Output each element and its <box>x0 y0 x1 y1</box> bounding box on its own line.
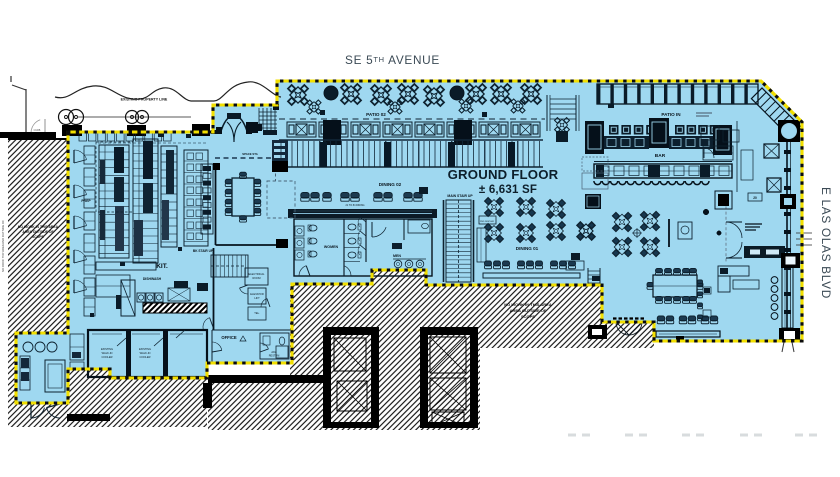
svg-text:SCOPE: SCOPE <box>521 314 535 319</box>
svg-text:2ND DISPLAY: 2ND DISPLAY <box>480 220 495 223</box>
svg-text:WALK-IN: WALK-IN <box>140 351 151 355</box>
svg-text:MEN: MEN <box>393 254 401 258</box>
svg-text:20: 20 <box>753 196 757 200</box>
svg-text:CURB: CURB <box>34 129 41 132</box>
svg-text:NO ROOF TOP AREA AND OUTSIDE O: NO ROOF TOP AREA AND OUTSIDE OF <box>1 220 5 272</box>
svg-text:SE 5TH AVENUE: SE 5TH AVENUE <box>345 53 440 67</box>
svg-text:E LAS OLAS BLVD: E LAS OLAS BLVD <box>819 187 833 299</box>
svg-text:SCOPE: SCOPE <box>32 235 45 239</box>
svg-text:EXISTING: EXISTING <box>101 347 113 351</box>
svg-text:COOLER: COOLER <box>140 355 151 359</box>
svg-text:KIT.: KIT. <box>156 263 168 270</box>
svg-text:DINING 01: DINING 01 <box>516 246 539 251</box>
svg-text:ELECTRICAL: ELECTRICAL <box>249 272 266 276</box>
svg-text:ROOM: ROOM <box>252 276 260 280</box>
svg-text:NO WORK IN THIS AREA: NO WORK IN THIS AREA <box>18 225 59 229</box>
svg-text:WALK-IN: WALK-IN <box>102 351 113 355</box>
svg-text:RESTRM: RESTRM <box>269 355 280 358</box>
svg-text:PREP: PREP <box>81 199 91 203</box>
svg-text:AREA OUTSIDE OF: AREA OUTSIDE OF <box>510 308 547 313</box>
svg-text:TEL.: TEL. <box>254 311 260 315</box>
svg-text:MAIN STAIR UP: MAIN STAIR UP <box>447 194 473 198</box>
svg-text:PATIO IN: PATIO IN <box>661 112 681 117</box>
svg-text:COOLER: COOLER <box>102 355 113 359</box>
svg-text:OFFICE: OFFICE <box>221 335 237 340</box>
svg-text:WOMEN: WOMEN <box>324 245 339 249</box>
svg-text:SPACE STA: SPACE STA <box>242 152 258 156</box>
svg-text:BK STAIR UP: BK STAIR UP <box>193 249 214 253</box>
svg-text:ELEVATOR: ELEVATOR <box>250 292 264 296</box>
svg-text:NO WORK IN THIS AREA: NO WORK IN THIS AREA <box>504 302 552 307</box>
svg-text:EXISTING PROPERTY LINE: EXISTING PROPERTY LINE <box>121 98 168 102</box>
svg-text:PATIO 02: PATIO 02 <box>366 112 386 117</box>
svg-text:GROUND FLOOR: GROUND FLOOR <box>448 167 559 182</box>
svg-text:± 6,631 SF: ± 6,631 SF <box>479 184 537 196</box>
svg-text:DINING 02: DINING 02 <box>379 182 402 187</box>
svg-text:EXISTING: EXISTING <box>139 347 151 351</box>
svg-text:LIFT: LIFT <box>254 296 260 300</box>
svg-text:DISHWASH: DISHWASH <box>143 277 162 281</box>
svg-text:AREA OUTSIDE OF: AREA OUTSIDE OF <box>22 230 53 234</box>
svg-text:BAR: BAR <box>655 153 666 159</box>
svg-text:21 TO 84 DINING: 21 TO 84 DINING <box>346 204 365 207</box>
